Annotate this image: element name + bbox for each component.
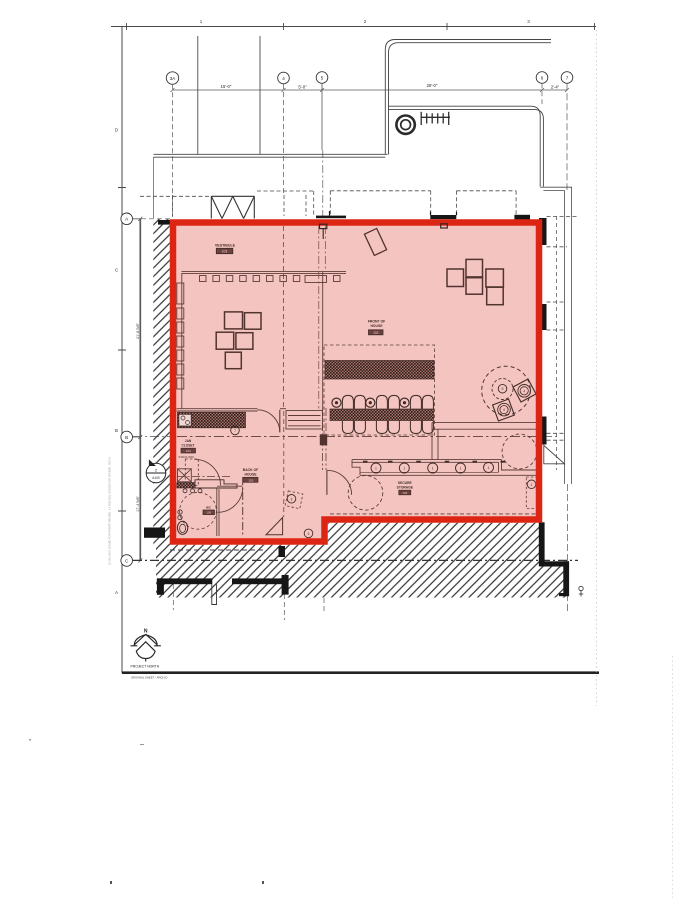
- svg-text:5: 5: [321, 75, 324, 80]
- svg-text:STORAGE: STORAGE: [397, 486, 414, 490]
- svg-text:N: N: [144, 629, 148, 635]
- svg-text:3: 3: [308, 532, 310, 536]
- svg-text:4: 4: [523, 389, 525, 393]
- svg-text:106: 106: [402, 491, 407, 495]
- svg-text:5: 5: [502, 387, 504, 391]
- svg-text:21'-8 5/8": 21'-8 5/8": [136, 322, 140, 339]
- svg-text:B: B: [125, 435, 128, 440]
- svg-text:102: 102: [373, 331, 379, 335]
- svg-text:3A: 3A: [170, 76, 177, 81]
- svg-text:103: 103: [222, 250, 228, 254]
- svg-text:SECURE: SECURE: [398, 481, 413, 485]
- svg-text:WC: WC: [206, 506, 212, 510]
- svg-text:1: 1: [403, 467, 405, 471]
- svg-text:2'-4": 2'-4": [551, 85, 560, 90]
- svg-text:22 JAN 2021 ISSUED FOR PERMIT: 22 JAN 2021 ISSUED FOR PERMIT REVIEW . 1…: [108, 457, 112, 565]
- svg-text:STACK W/D: STACK W/D: [178, 455, 193, 459]
- svg-text:6: 6: [541, 75, 544, 80]
- svg-text:7: 7: [234, 429, 236, 433]
- svg-text:PROJECT NORTH: PROJECT NORTH: [131, 665, 160, 669]
- svg-text:4: 4: [503, 408, 505, 412]
- svg-text:7: 7: [566, 75, 569, 80]
- svg-text:15'-0": 15'-0": [221, 84, 232, 89]
- svg-text:1: 1: [488, 466, 490, 470]
- svg-text:104: 104: [186, 449, 191, 453]
- svg-text:105: 105: [206, 511, 211, 515]
- svg-text:3: 3: [291, 497, 293, 501]
- svg-text:A100: A100: [152, 476, 160, 480]
- svg-text:BACK OF: BACK OF: [243, 468, 258, 472]
- svg-text:26'-0": 26'-0": [427, 83, 438, 88]
- svg-text:1: 1: [432, 467, 434, 471]
- svg-text:VESTIBULE: VESTIBULE: [215, 244, 236, 248]
- svg-text:1: 1: [531, 483, 533, 487]
- svg-text:1: 1: [460, 467, 462, 471]
- svg-text:ORIGINAL SHEET - ARCH D: ORIGINAL SHEET - ARCH D: [131, 676, 167, 680]
- svg-text:HOUSE: HOUSE: [370, 324, 383, 328]
- svg-text:4: 4: [282, 76, 285, 81]
- svg-text:B: B: [115, 428, 118, 433]
- svg-text:FRONT OF: FRONT OF: [368, 320, 385, 324]
- svg-text:HOUSE: HOUSE: [244, 473, 257, 477]
- svg-text:CLOSET: CLOSET: [182, 443, 195, 447]
- svg-text:103: 103: [248, 478, 253, 482]
- svg-text:1: 1: [375, 467, 377, 471]
- svg-text:17'-4 5/8": 17'-4 5/8": [136, 495, 140, 512]
- svg-text:5'-0": 5'-0": [298, 85, 307, 90]
